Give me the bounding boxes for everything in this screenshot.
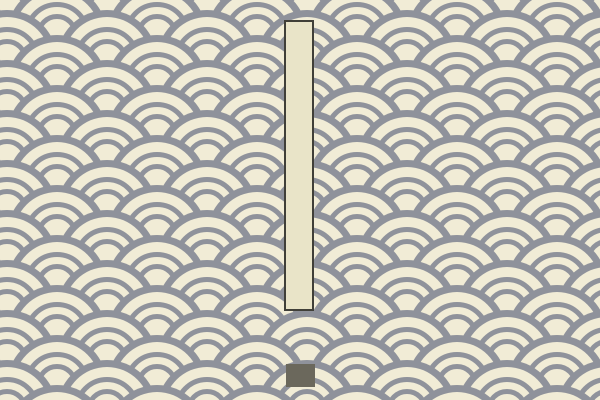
tall-bar-piece[interactable] (284, 20, 314, 311)
small-block-piece[interactable] (286, 364, 315, 387)
game-stage (0, 0, 600, 400)
